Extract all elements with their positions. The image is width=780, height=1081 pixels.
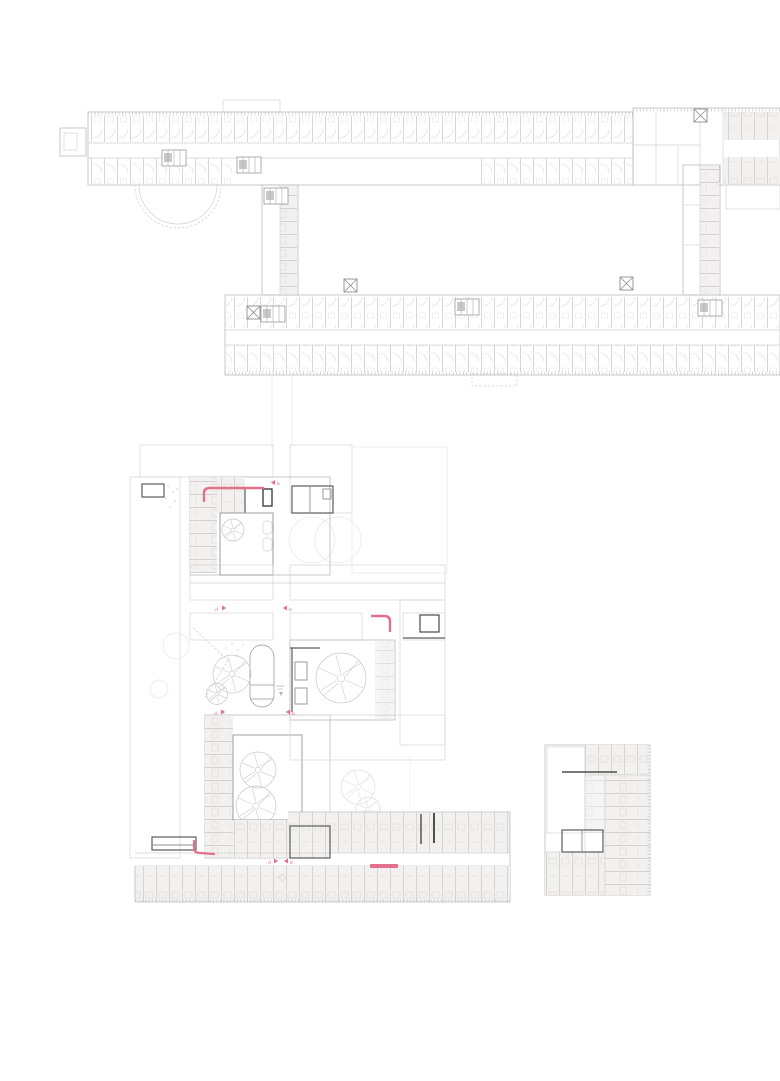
dense-hatch-strip — [547, 747, 585, 833]
tree-symbol — [213, 655, 251, 693]
upper-building — [60, 100, 780, 447]
annex-building — [545, 745, 650, 895]
section-marker-bottom-right: b — [284, 859, 293, 867]
section-marker-label: d — [215, 607, 218, 613]
room-band — [140, 445, 273, 477]
faint-pond — [315, 517, 361, 563]
courtyard — [233, 735, 302, 820]
accent-highlight-bar — [370, 864, 398, 868]
elevator-shaft — [344, 279, 357, 292]
courtyard — [220, 513, 273, 575]
room-band — [290, 445, 352, 513]
dark-fixture — [142, 484, 164, 497]
stair-core — [264, 188, 288, 204]
room-band — [290, 565, 445, 600]
room-band — [290, 613, 362, 640]
section-marker-label: b — [289, 607, 292, 613]
block-b — [290, 640, 395, 720]
elevator-shaft — [620, 277, 633, 290]
tree-symbol — [207, 684, 228, 705]
tree-symbol — [316, 653, 366, 703]
room-band — [190, 613, 273, 640]
section-marker-label: d — [214, 711, 217, 717]
floor-plan-canvas: b d b d b d b — [0, 0, 780, 1081]
section-marker-mid-left: d — [214, 710, 225, 718]
block-a — [142, 477, 333, 575]
section-marker-label: b — [277, 481, 280, 487]
faint-tree — [150, 680, 168, 698]
faint-pond — [289, 517, 335, 563]
section-marker-label: d — [268, 860, 271, 866]
faint-courtyard — [330, 757, 410, 821]
right-vertical-wing — [683, 165, 720, 295]
section-marker-bottom-left: d — [268, 859, 278, 867]
floor-plan-drawing: b d b d b d b — [0, 0, 780, 1081]
stair-core — [237, 157, 261, 173]
stair-core — [455, 299, 479, 315]
dark-fixture — [420, 615, 439, 632]
top-wing — [60, 100, 633, 185]
dark-fixture — [263, 489, 272, 506]
room-band-left-column — [130, 477, 180, 858]
gravel-dots — [165, 485, 178, 508]
bold-suite — [292, 486, 333, 513]
section-marker-label: b — [290, 860, 293, 866]
semicircular-hall — [135, 185, 221, 228]
stair-core — [162, 150, 186, 166]
roof-bump — [223, 100, 280, 112]
left-vertical-wing — [262, 185, 298, 295]
lower-building — [130, 445, 510, 902]
bottom-wing — [225, 277, 780, 386]
faint-tree — [163, 633, 189, 659]
section-marker-label: b — [292, 711, 295, 717]
bench-fixture — [152, 837, 196, 850]
right-column-wing — [400, 600, 445, 745]
elevator-shaft — [247, 306, 260, 319]
section-marker-upper-left: d — [215, 606, 226, 614]
pond — [250, 645, 274, 707]
stair-core — [698, 300, 722, 316]
level-marker — [276, 686, 284, 696]
section-marker-upper-right: b — [283, 606, 292, 614]
canopy-outline — [472, 374, 517, 386]
section-marker-top: b — [271, 480, 280, 487]
accent-highlight-wall — [372, 616, 390, 631]
stair-core — [261, 306, 285, 322]
room-band — [290, 715, 445, 760]
faint-roof-outline — [352, 447, 447, 573]
room-strip — [726, 185, 780, 209]
elevator-shaft — [694, 109, 707, 122]
